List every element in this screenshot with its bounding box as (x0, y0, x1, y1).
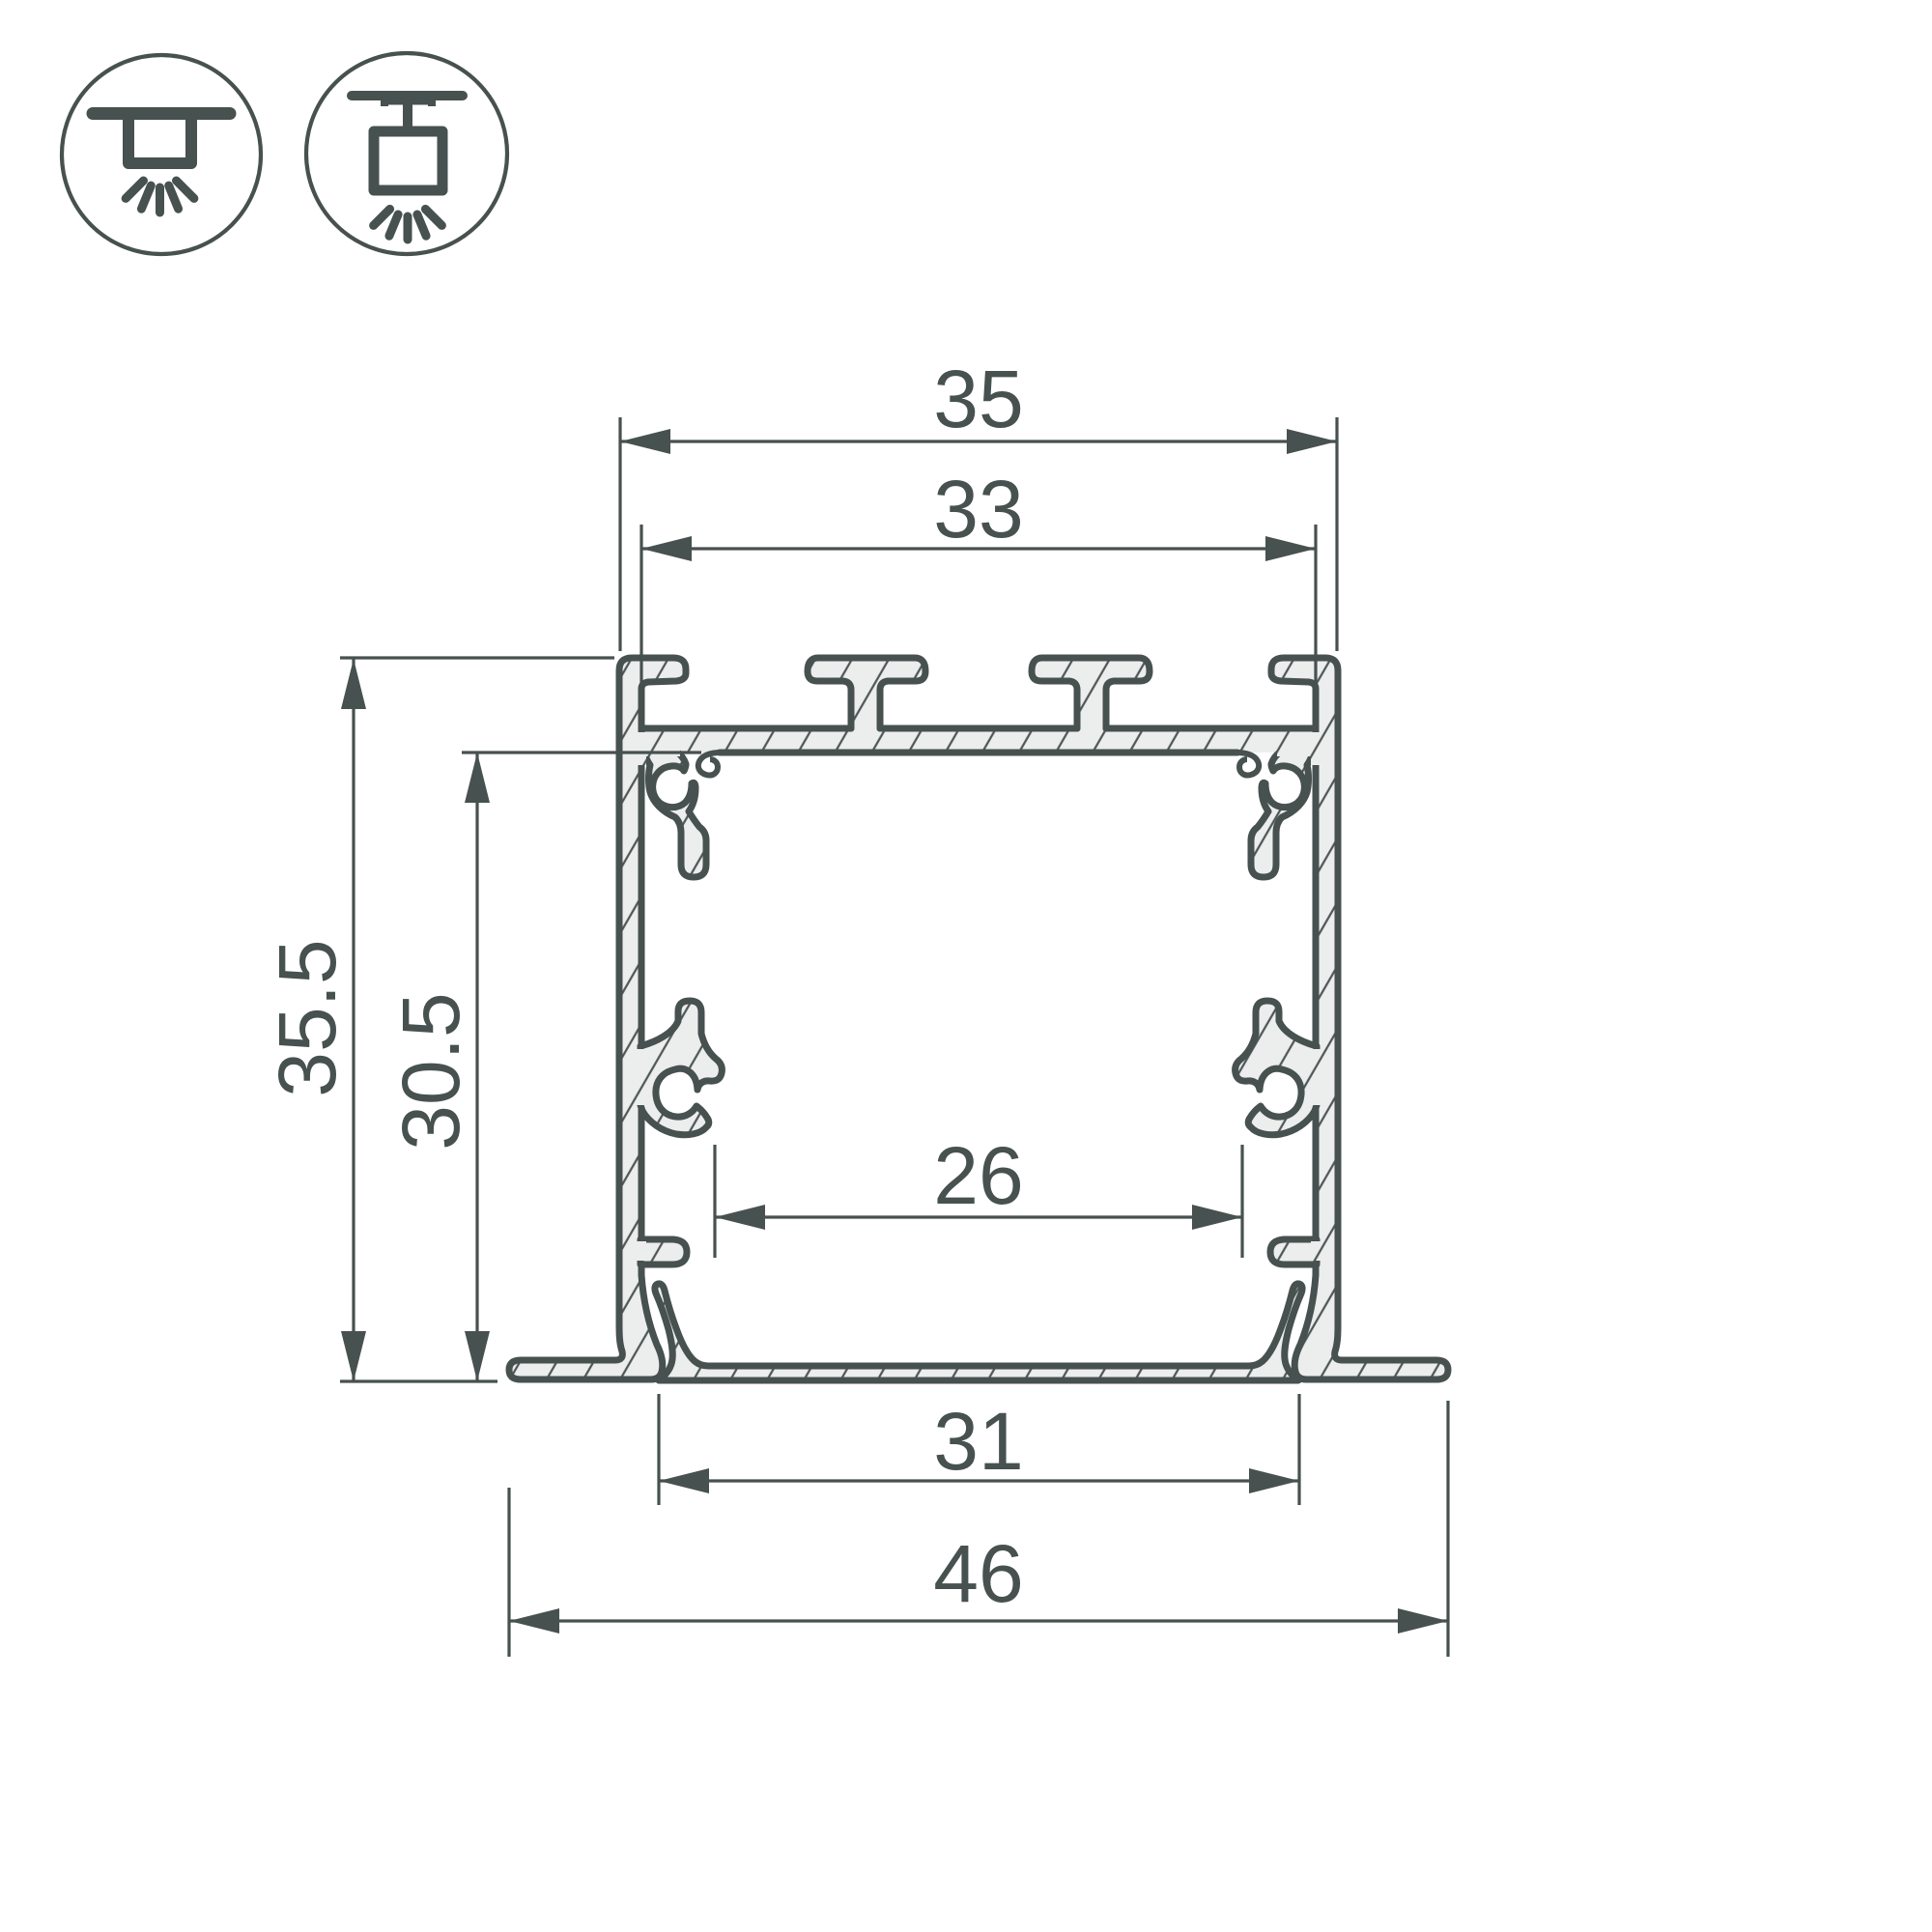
svg-text:35: 35 (933, 354, 1023, 444)
svg-text:46: 46 (933, 1528, 1023, 1619)
svg-text:30.5: 30.5 (385, 992, 476, 1151)
svg-text:35.5: 35.5 (262, 939, 353, 1097)
svg-text:33: 33 (933, 464, 1023, 554)
svg-text:31: 31 (933, 1396, 1023, 1487)
svg-text:26: 26 (933, 1130, 1023, 1221)
